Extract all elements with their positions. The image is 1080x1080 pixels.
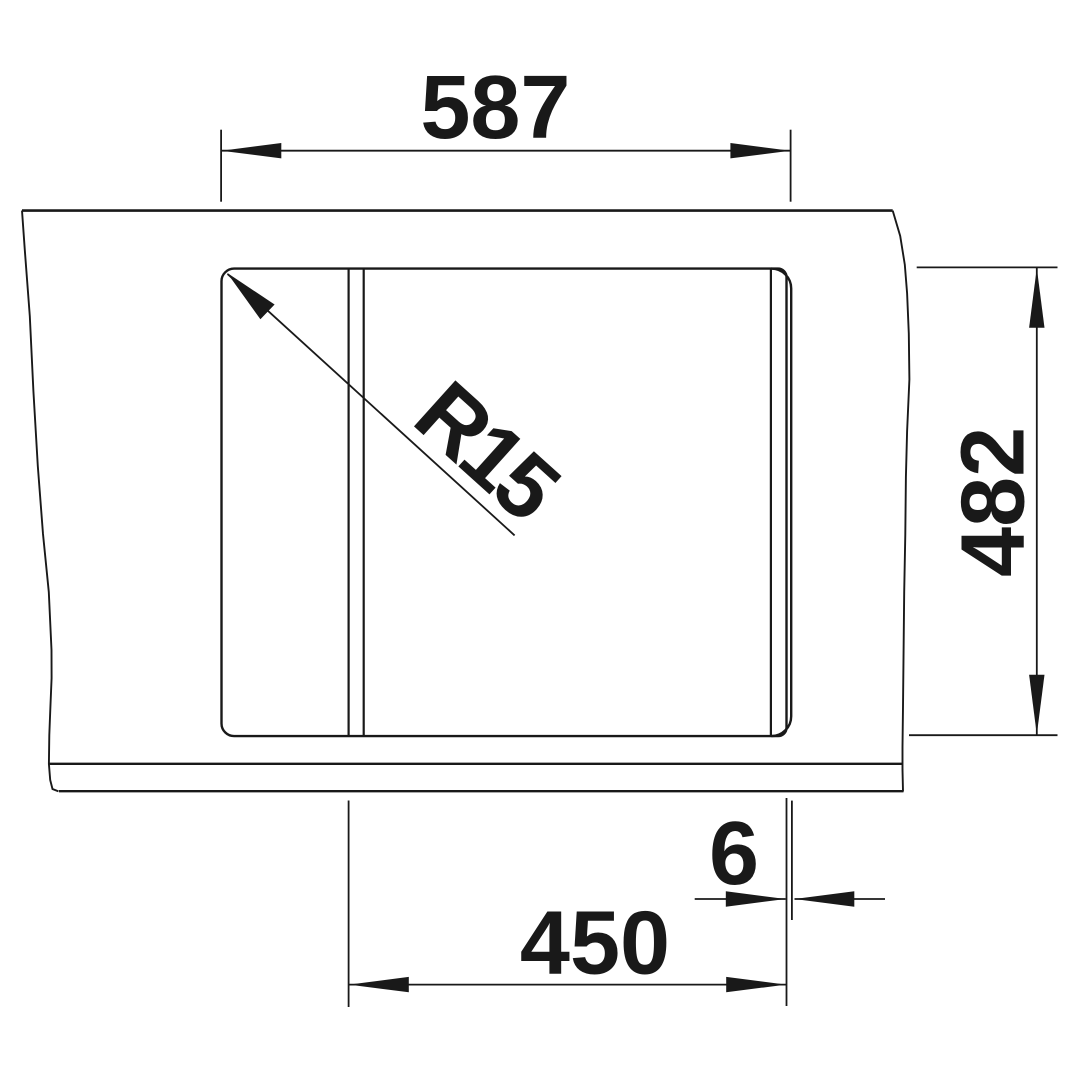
svg-text:6: 6 [709, 804, 759, 904]
svg-text:587: 587 [420, 58, 570, 158]
svg-text:450: 450 [520, 894, 670, 994]
svg-text:482: 482 [943, 427, 1043, 577]
